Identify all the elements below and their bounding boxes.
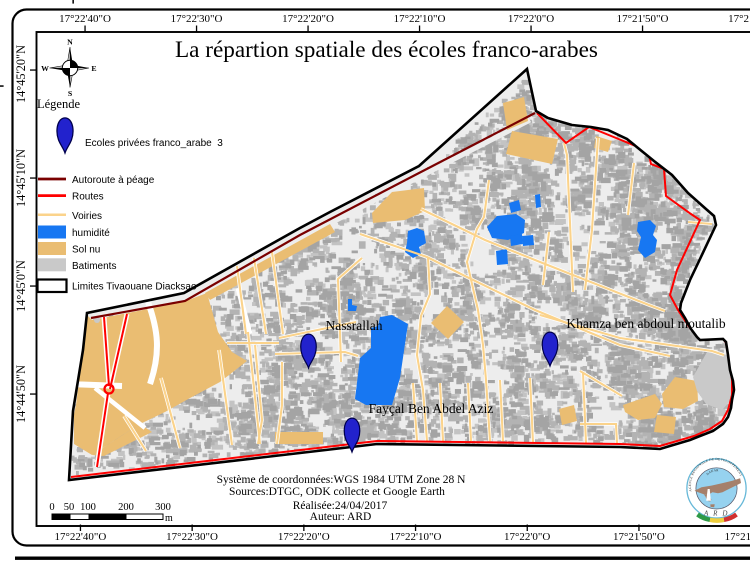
svg-text:17°21'50"O: 17°21'50"O (617, 13, 669, 25)
svg-text:Autoroute à péage: Autoroute à péage (72, 175, 155, 186)
svg-text:17°22'20"O: 17°22'20"O (282, 13, 334, 25)
svg-text:Auteur: ARD: Auteur: ARD (310, 511, 372, 523)
svg-text:300: 300 (155, 502, 171, 513)
svg-text:Système de coordonnées:WGS 198: Système de coordonnées:WGS 1984 UTM Zone… (217, 474, 467, 486)
svg-text:14°44'50"N: 14°44'50"N (14, 365, 28, 423)
svg-text:N: N (67, 38, 73, 47)
svg-text:Fayçal Ben Abdel Aziz: Fayçal Ben Abdel Aziz (369, 401, 494, 416)
svg-text:m: m (165, 513, 173, 524)
svg-text:17°22'40"O: 17°22'40"O (54, 531, 106, 543)
svg-text:17°22'40"O: 17°22'40"O (59, 13, 111, 25)
svg-text:100: 100 (80, 502, 96, 513)
svg-text:14°45'0"N: 14°45'0"N (14, 260, 28, 312)
svg-text:Khamza ben abdoul moutalib: Khamza ben abdoul moutalib (566, 316, 726, 331)
svg-text:17°21'40"O: 17°21'40"O (728, 13, 750, 25)
svg-text:W: W (41, 64, 49, 73)
svg-text:Voiries: Voiries (72, 211, 102, 222)
svg-text:14°45'20"N: 14°45'20"N (14, 45, 28, 103)
svg-text:E: E (91, 64, 96, 73)
svg-text:Routes: Routes (72, 192, 104, 203)
svg-text:humidité: humidité (72, 228, 110, 239)
svg-text:17°21'40"O: 17°21'40"O (725, 531, 750, 543)
svg-text:La répartion spatiale des écol: La répartion spatiale des écoles franco-… (175, 37, 598, 63)
svg-text:50: 50 (64, 502, 75, 513)
svg-text:Limites Tivaouane Diacksao: Limites Tivaouane Diacksao (72, 282, 197, 293)
svg-text:17°22'30"O: 17°22'30"O (166, 531, 218, 543)
svg-text:17°22'10"O: 17°22'10"O (390, 531, 442, 543)
svg-text:17°22'30"O: 17°22'30"O (171, 13, 223, 25)
svg-text:17°22'0"O: 17°22'0"O (508, 13, 554, 25)
svg-text:0: 0 (49, 502, 54, 513)
svg-text:Batiments: Batiments (72, 261, 116, 272)
svg-text:14°45'10"N: 14°45'10"N (14, 149, 28, 207)
svg-text:17°22'20"O: 17°22'20"O (278, 531, 330, 543)
svg-text:Légende: Légende (37, 97, 80, 111)
svg-text:Nassrallah: Nassrallah (326, 318, 383, 333)
svg-text:A R D: A R D (703, 510, 729, 518)
svg-text:Ecoles privées franco_arabe 3: Ecoles privées franco_arabe 3 (85, 138, 223, 149)
svg-text:Sol nu: Sol nu (72, 245, 100, 256)
svg-text:17°22'10"O: 17°22'10"O (394, 13, 446, 25)
svg-text:17°21'50"O: 17°21'50"O (613, 531, 665, 543)
svg-text:Sources:DTGC, ODK collecte et: Sources:DTGC, ODK collecte et Google Ear… (229, 486, 445, 498)
svg-text:200: 200 (118, 502, 134, 513)
svg-text:17°22'0"O: 17°22'0"O (504, 531, 550, 543)
